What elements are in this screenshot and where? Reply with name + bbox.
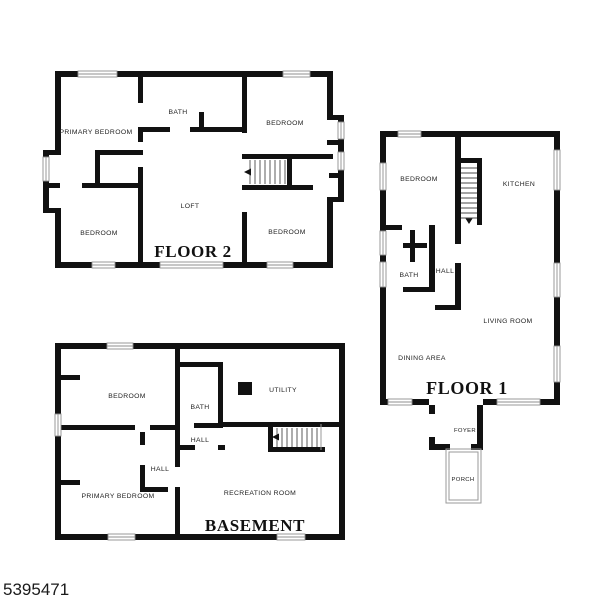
floor2-walls [43,71,344,268]
porch-outline [446,449,481,503]
room-label-floor1-hall: HALL [436,268,454,275]
room-label-floor2-primary-bedroom: PRIMARY BEDROOM [60,129,133,136]
wall-segment [327,71,333,120]
utility-equipment-square [238,382,252,395]
wall-segment [242,71,247,133]
room-label-floor2-bedroom-bottom-left: BEDROOM [80,230,118,237]
wall-segment [287,159,292,185]
wall-segment [55,71,61,155]
basement-stairs-treads [277,428,317,447]
wall-segment [223,422,345,427]
wall-segment [190,127,242,132]
wall-segment [175,445,195,450]
floor2-stairs-treads [250,160,285,184]
wall-segment [49,183,60,188]
wall-segment [242,185,313,190]
wall-segment [175,487,180,534]
wall-segment [477,163,482,225]
wall-segment [55,375,80,380]
wall-segment [339,343,345,540]
wall-segment [140,487,168,492]
room-label-floor2-bedroom-top-right: BEDROOM [266,120,304,127]
wall-segment [403,243,427,248]
wall-segment [175,450,180,467]
wall-segment [218,445,225,450]
wall-segment [55,343,345,349]
floor1-title: FLOOR 1 [426,378,508,398]
room-label-floor1-porch: PORCH [451,477,474,483]
room-label-floor2-loft: LOFT [181,203,200,210]
wall-segment [175,349,180,450]
room-label-basement-primary-bedroom: PRIMARY BEDROOM [82,493,155,500]
room-label-floor1-bedroom: BEDROOM [400,176,438,183]
wall-segment [461,158,482,163]
wall-segment [55,208,61,268]
floor2-plan: PRIMARY BEDROOM BATH BEDROOM LOFT BEDROO… [43,71,344,268]
room-label-floor1-living-room: LIVING ROOM [483,318,532,325]
wall-segment [138,71,143,103]
wall-segment [55,343,61,540]
wall-segment [455,137,461,244]
floorplan-page: PRIMARY BEDROOM BATH BEDROOM LOFT BEDROO… [0,0,600,600]
wall-segment [138,127,143,142]
room-label-floor1-kitchen: KITCHEN [503,181,535,188]
wall-segment [435,305,461,310]
wall-segment [268,447,325,452]
floor1-windows [380,131,560,405]
floor1-stairs-arrow-icon [466,219,473,225]
wall-segment [138,167,143,263]
wall-segment [140,432,145,445]
room-label-basement-bedroom: BEDROOM [108,393,146,400]
wall-segment [82,183,143,188]
listing-id-text: 5395471 [3,580,69,599]
room-label-basement-recreation-room: RECREATION ROOM [224,490,296,497]
room-label-floor1-dining-area: DINING AREA [398,355,446,362]
wall-segment [327,197,344,202]
wall-segment [429,225,435,292]
wall-segment [455,263,461,310]
room-label-floor1-bath: BATH [399,272,418,279]
wall-segment [55,480,80,485]
room-label-basement-utility: UTILITY [269,387,297,394]
floor2-title: FLOOR 2 [154,242,231,261]
floor1-plan: BEDROOM KITCHEN BATH HALL LIVING ROOM DI… [380,131,560,503]
room-label-floor1-foyer: FOYER [454,428,476,434]
wall-segment [242,154,333,159]
wall-segment [477,405,483,450]
wall-segment [55,425,135,430]
wall-segment [386,225,402,230]
room-label-basement-hall-lower: HALL [151,466,169,473]
basement-plan: BEDROOM BATH HALL UTILITY HALL PRIMARY B… [55,343,345,540]
basement-stairs-arrow-icon [272,434,279,441]
wall-segment [242,212,247,262]
wall-segment [327,140,338,145]
basement-title: BASEMENT [205,516,305,535]
wall-segment [150,425,177,430]
floorplan-drawing: PRIMARY BEDROOM BATH BEDROOM LOFT BEDROO… [0,0,600,600]
floor2-windows [43,71,344,268]
room-label-floor2-bedroom-bottom-right: BEDROOM [268,229,306,236]
wall-segment [327,202,333,268]
wall-segment [95,150,100,188]
wall-segment [95,150,143,155]
room-label-basement-bath: BATH [190,404,209,411]
wall-segment [403,287,429,292]
room-label-basement-hall-upper: HALL [191,437,209,444]
room-label-floor2-bath: BATH [168,109,187,116]
wall-segment [180,362,223,367]
wall-segment [143,127,170,132]
wall-segment [199,112,204,129]
floor1-stairs-treads [461,168,477,218]
wall-segment [194,423,223,428]
floor2-stairs-arrow-icon [244,169,251,176]
wall-segment [329,173,338,178]
wall-segment [429,405,435,414]
wall-segment [218,367,223,423]
